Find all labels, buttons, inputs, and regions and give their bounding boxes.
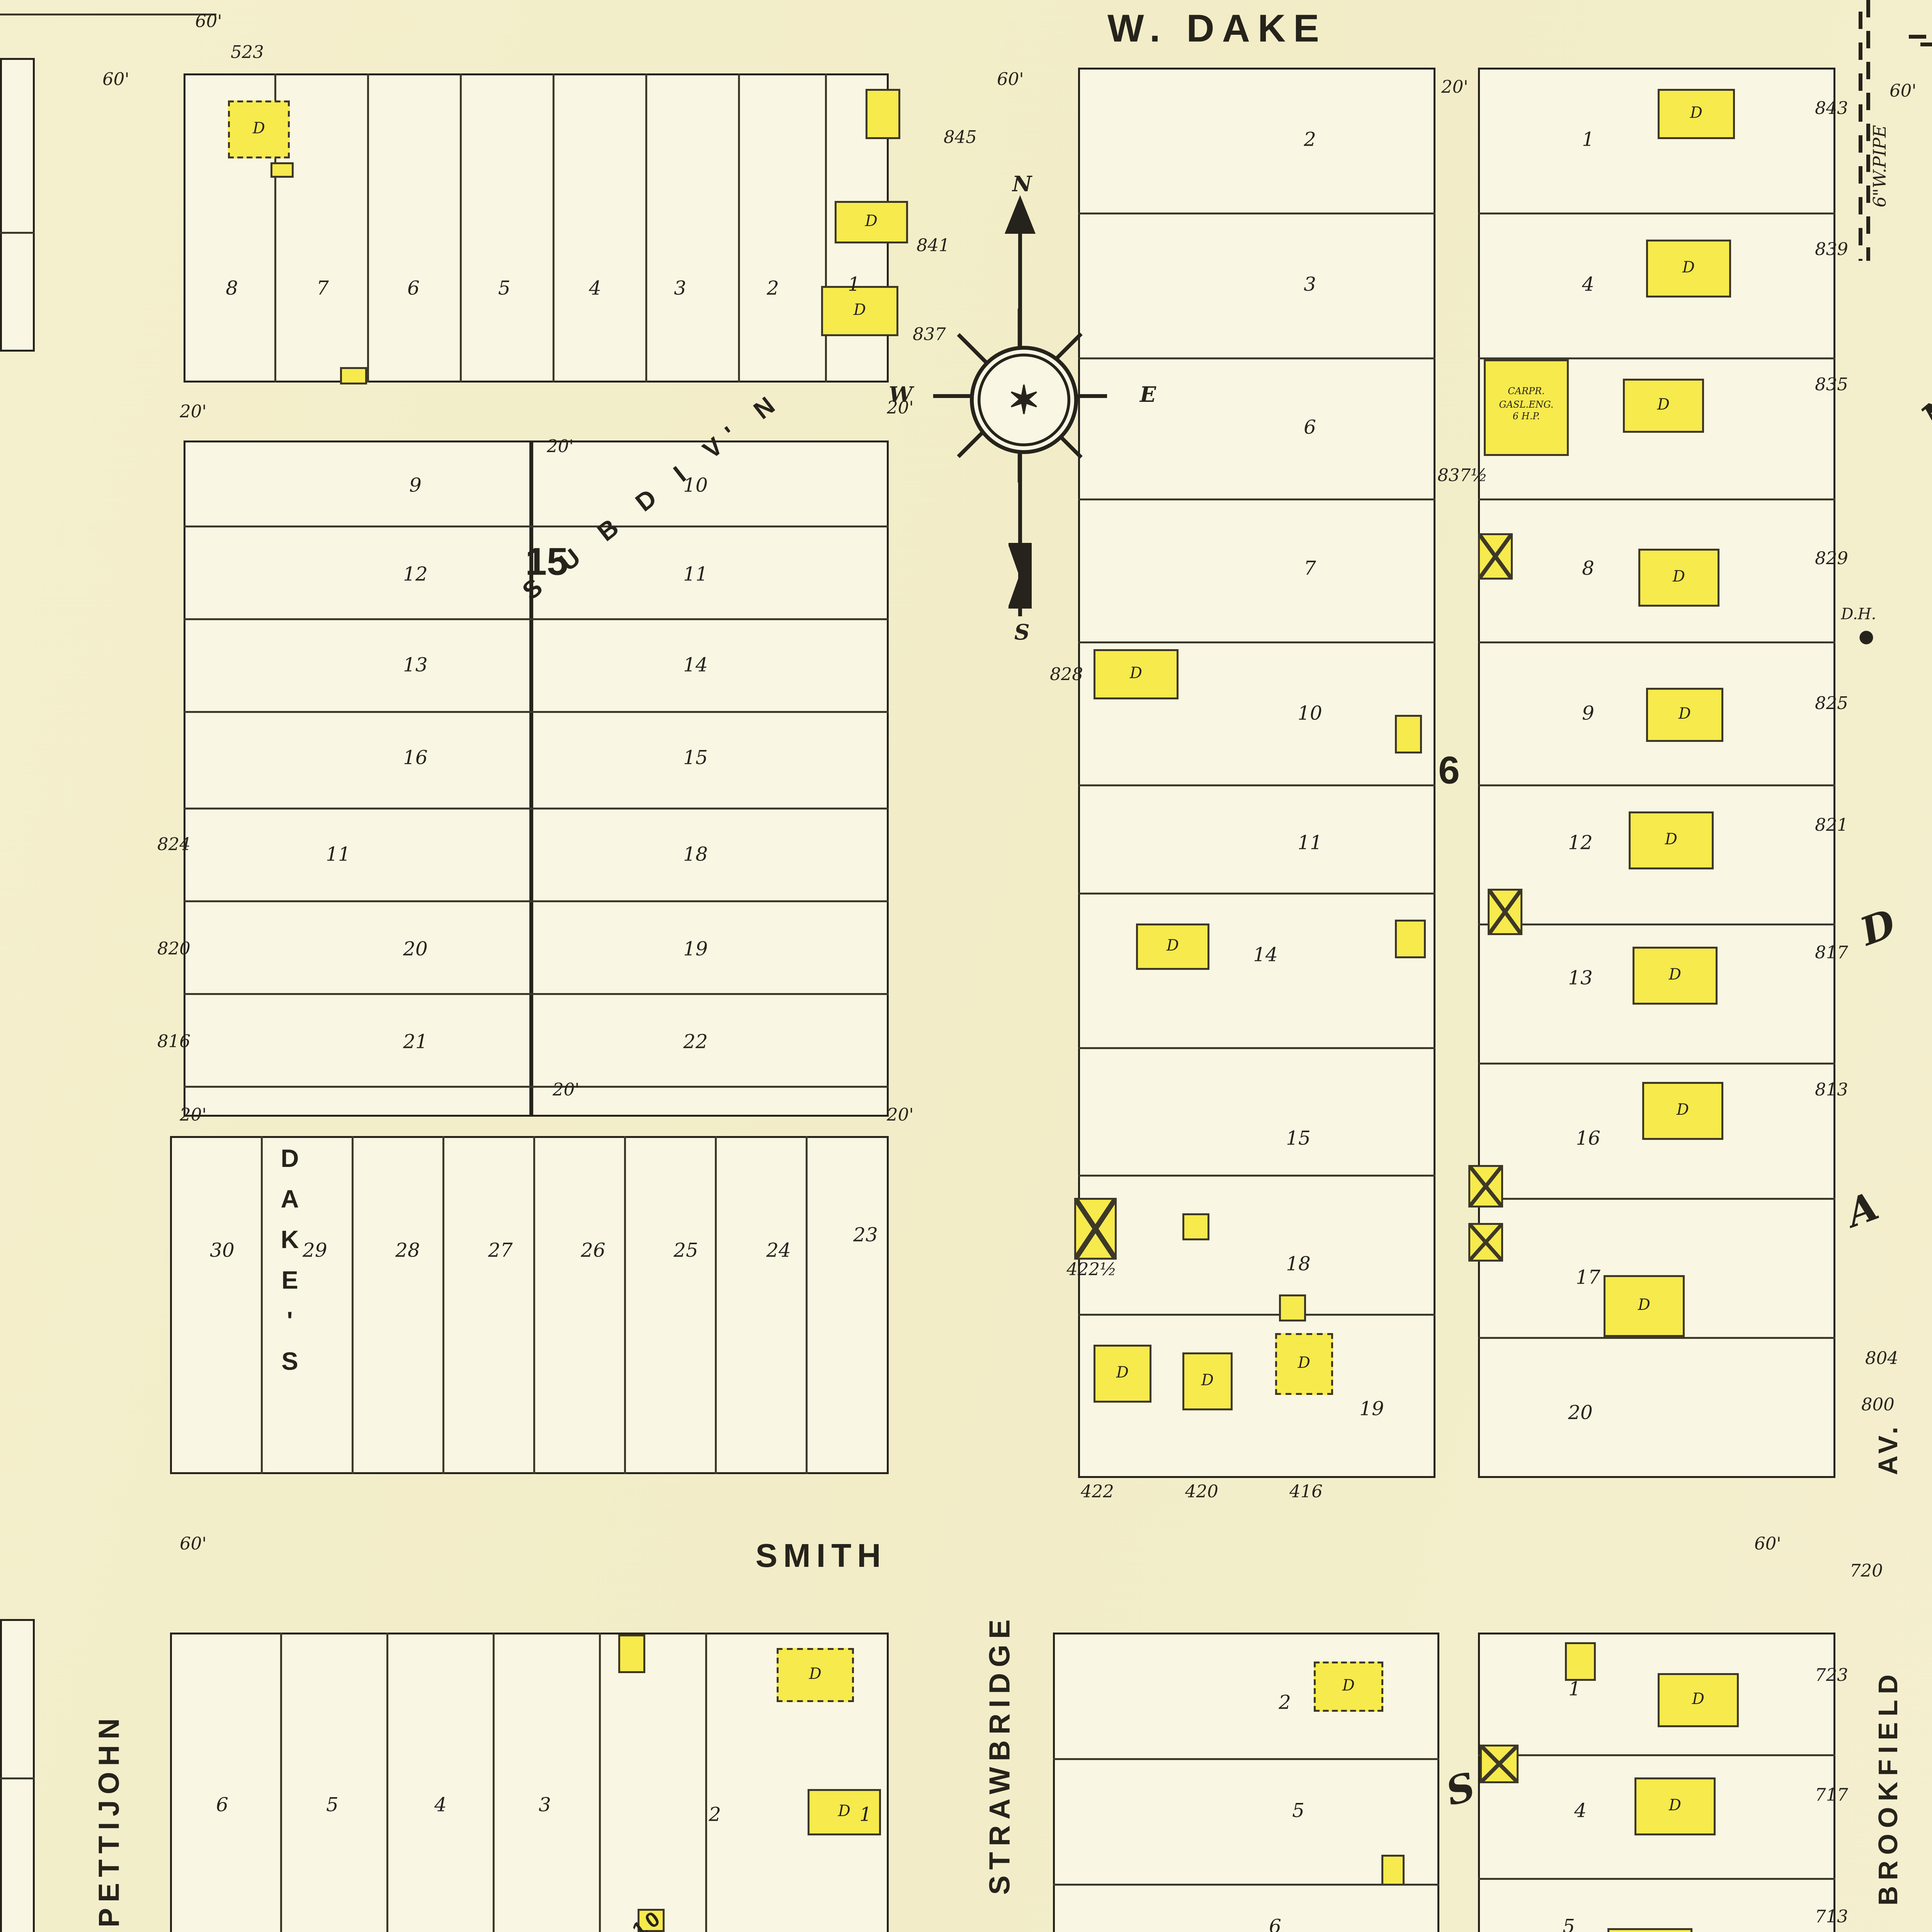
compass-north-arrow-icon — [1005, 195, 1036, 234]
house-number: 420 — [1185, 1484, 1218, 1503]
lot-line — [1478, 498, 1835, 500]
dwelling-label: D — [1673, 570, 1685, 585]
lot-number: 28 — [395, 1242, 420, 1263]
lot-number: 23 — [853, 1226, 878, 1247]
lot-line — [442, 1136, 444, 1474]
lot-line — [531, 526, 889, 527]
dimension-label: 60' — [1754, 1536, 1781, 1555]
building-footprint — [1279, 1294, 1306, 1321]
building-footprint — [1074, 1198, 1117, 1260]
building-footprint: D — [777, 1648, 854, 1702]
building-footprint: D — [1604, 1275, 1685, 1337]
house-number: 723 — [1815, 1667, 1848, 1687]
dwelling-label: D — [838, 1804, 850, 1820]
building-footprint: D — [1094, 1345, 1151, 1403]
lot-line — [645, 73, 647, 383]
subdivision-label: DAKE'S — [276, 1144, 304, 1387]
dwelling-label: D — [865, 214, 878, 230]
lot-line — [184, 711, 531, 713]
lot-line — [386, 1633, 388, 1932]
house-number: 821 — [1815, 817, 1848, 837]
building-footprint — [618, 1634, 645, 1673]
lot-number: 3 — [674, 279, 686, 301]
lot-number: 27 — [488, 1242, 513, 1263]
building-footprint: D — [1623, 379, 1704, 433]
lot-line — [531, 808, 889, 810]
lot-line — [1078, 1314, 1435, 1316]
street-spelled-letter: D — [1854, 900, 1902, 955]
lot-line — [1478, 1754, 1835, 1756]
house-number: 820 — [157, 941, 190, 960]
lot-line — [624, 1136, 626, 1474]
block-6: 6 — [1438, 751, 1460, 795]
house-number: 843 — [1815, 100, 1848, 120]
building-footprint — [270, 162, 294, 178]
dwelling-label: D — [1682, 261, 1695, 276]
lot-number: 10 — [683, 476, 708, 498]
lot-line — [1478, 1337, 1835, 1339]
city-block — [0, 1619, 35, 1932]
lot-number: 30 — [210, 1242, 235, 1263]
dwelling-label: D — [1130, 667, 1142, 682]
dimension-label: 20' — [1441, 79, 1468, 99]
lot-number: 6 — [1269, 1918, 1281, 1932]
compass-north-label: N — [1012, 172, 1032, 197]
lot-number: 6 — [407, 279, 420, 301]
house-number: 800 — [1861, 1397, 1895, 1416]
dwelling-label: D — [854, 303, 866, 319]
lot-number: 20 — [1568, 1404, 1593, 1425]
dwelling-label: D — [1342, 1679, 1355, 1694]
map-viewport: SEPT 1911 BROOKFIELD MO. ✶ N E S W Scale… — [0, 0, 1932, 1932]
lot-number: 20 — [403, 940, 428, 961]
lot-line — [1078, 1175, 1435, 1177]
water-pipe-line — [1859, 0, 1870, 261]
building-footprint: D — [1633, 947, 1718, 1005]
lot-number: 1 — [848, 276, 860, 297]
dwelling-label: D — [1657, 398, 1670, 413]
building-footprint: D — [1646, 688, 1723, 742]
house-number: 828 — [1050, 667, 1083, 686]
building-footprint — [1381, 1855, 1405, 1886]
building-footprint — [1488, 889, 1522, 935]
house-number: 713 — [1815, 1909, 1848, 1928]
lot-line — [1478, 213, 1835, 214]
lot-line — [184, 618, 531, 620]
house-number: 845 — [944, 129, 977, 149]
lot-line — [493, 1633, 495, 1932]
lot-number: 11 — [1298, 834, 1322, 855]
building-footprint — [1565, 1642, 1596, 1681]
lot-number: 15 — [683, 749, 708, 770]
lot-line — [0, 1777, 35, 1779]
lot-line — [705, 1633, 707, 1932]
lot-line — [1478, 1198, 1835, 1200]
lot-number: 25 — [673, 1242, 698, 1263]
lot-number: 16 — [1576, 1129, 1600, 1151]
house-number: 816 — [157, 1034, 190, 1053]
lot-line — [533, 1136, 535, 1474]
lot-number: 6 — [1304, 418, 1316, 440]
lot-line — [460, 73, 462, 383]
lot-number: 13 — [1568, 969, 1593, 990]
building-footprint — [1182, 1213, 1209, 1240]
house-number: 824 — [157, 837, 190, 856]
lot-line — [553, 73, 554, 383]
dwelling-label: D — [1638, 1298, 1650, 1314]
compass-fletching-icon — [1009, 543, 1032, 609]
lot-number: 8 — [1582, 560, 1594, 581]
building-footprint: D — [1658, 1673, 1739, 1727]
lot-line — [1478, 1878, 1835, 1880]
lot-number: 1 — [859, 1806, 872, 1827]
lot-line — [531, 1086, 889, 1088]
dimension-label: 20' — [553, 1082, 580, 1101]
lot-number: 4 — [434, 1796, 447, 1817]
carpenter-line1: CARPR. — [1508, 389, 1545, 401]
lot-line — [367, 73, 369, 383]
lot-line — [184, 808, 531, 810]
lot-line — [715, 1136, 717, 1474]
house-number: 825 — [1815, 696, 1848, 715]
street-label-pettijohn: PETTIJOHN — [94, 1713, 127, 1927]
lot-number: 5 — [326, 1796, 338, 1817]
lot-number: 7 — [1304, 560, 1316, 581]
double-hydrant-label: D.H. — [1841, 606, 1876, 623]
carpenter-line2: GASL.ENG. — [1499, 401, 1554, 414]
lot-line — [531, 618, 889, 620]
lot-line — [280, 1633, 282, 1932]
street-label-av-: AV. — [1872, 1423, 1903, 1475]
building-footprint — [866, 89, 900, 139]
lot-number: 18 — [1286, 1255, 1311, 1276]
lot-number: 16 — [403, 749, 428, 770]
lot-number: 10 — [1298, 704, 1322, 726]
lot-number: 19 — [683, 940, 708, 961]
lot-line — [806, 1136, 808, 1474]
lot-line — [531, 993, 889, 995]
lot-line — [261, 1136, 263, 1474]
house-number: 717 — [1815, 1787, 1848, 1806]
dwelling-label: D — [1677, 1103, 1689, 1119]
compass-east-label: E — [1140, 383, 1156, 408]
compass-west-label: W — [889, 383, 913, 408]
dwelling-label: D — [1692, 1692, 1704, 1708]
lot-number: 14 — [683, 656, 708, 677]
lot-line — [1053, 1758, 1439, 1760]
lot-number: 12 — [403, 565, 428, 587]
double-hydrant-marker — [1860, 631, 1873, 645]
lot-number: 22 — [683, 1033, 708, 1054]
lot-line — [1078, 893, 1435, 895]
house-number: 813 — [1815, 1082, 1848, 1101]
building-footprint — [1395, 715, 1422, 753]
lot-number: 5 — [498, 279, 510, 301]
compass-monogram: ✶ — [970, 346, 1078, 454]
dwelling-label: D — [1665, 833, 1677, 848]
dimension-label: 60' — [1889, 83, 1917, 102]
dwelling-label: D — [1679, 707, 1691, 723]
building-footprint: D — [1314, 1662, 1383, 1712]
house-number: 817 — [1815, 945, 1848, 964]
lot-line — [184, 993, 531, 995]
dimension-label: 20' — [547, 439, 574, 458]
lot-number: 17 — [1576, 1269, 1600, 1290]
dimension-label: 60' — [102, 71, 129, 91]
building-footprint — [1480, 1745, 1519, 1783]
building-footprint — [1395, 920, 1426, 958]
carpenter-shop-building: CARPR. GASL.ENG. 6 H.P. — [1484, 359, 1569, 456]
sanborn-map-canvas: SEPT 1911 BROOKFIELD MO. ✶ N E S W Scale… — [0, 0, 1932, 1932]
lot-number: 1 — [1582, 131, 1594, 152]
lot-number: 3 — [1304, 276, 1316, 297]
dimension-label: 20' — [887, 1107, 914, 1126]
compass-rose-icon: ✶ N E S W — [893, 184, 1155, 647]
house-number: 720 — [1850, 1563, 1883, 1582]
lot-number: 4 — [1582, 276, 1594, 297]
lot-line — [1478, 923, 1835, 925]
lot-number: 8 — [226, 279, 238, 301]
lot-number: 3 — [539, 1796, 551, 1817]
street-label-w-dake: W. DAKE — [1107, 9, 1327, 53]
building-footprint: D — [1136, 923, 1209, 970]
house-number: 829 — [1815, 551, 1848, 570]
building-footprint — [1478, 533, 1513, 580]
street-label-strawbridge: STRAWBRIDGE — [985, 1614, 1017, 1895]
lot-number: 6 — [216, 1796, 228, 1817]
lot-number: 11 — [326, 845, 350, 867]
dwelling-label: D — [1116, 1366, 1129, 1381]
house-number: 835 — [1815, 377, 1848, 396]
carpenter-line3: 6 H.P. — [1513, 414, 1540, 426]
lot-number: 9 — [1582, 704, 1594, 726]
building-footprint: D — [1658, 89, 1735, 139]
lot-number: 21 — [403, 1033, 428, 1054]
building-footprint — [1468, 1165, 1503, 1207]
lot-line — [184, 526, 531, 527]
dwelling-label: D — [1201, 1374, 1214, 1389]
lot-number: 4 — [589, 279, 601, 301]
house-number: 523 — [231, 44, 264, 64]
building-footprint: D — [1182, 1352, 1233, 1410]
building-footprint — [340, 367, 367, 384]
lot-line — [0, 232, 35, 234]
lot-number: 29 — [303, 1242, 327, 1263]
lot-line — [738, 73, 740, 383]
building-footprint: D — [1275, 1333, 1333, 1395]
city-block — [0, 58, 35, 352]
lot-line — [0, 14, 216, 15]
dwelling-label: D — [809, 1667, 821, 1683]
building-footprint: D — [1638, 549, 1719, 607]
lot-line — [352, 1136, 354, 1474]
dimension-label: 60' — [195, 14, 222, 33]
dimension-label: 60' — [180, 1536, 207, 1555]
pipe-note-label: 6"W.PIPE — [1872, 125, 1891, 207]
house-number: 804 — [1865, 1350, 1898, 1370]
dwelling-label: D — [1298, 1356, 1310, 1372]
house-number: 416 — [1289, 1484, 1323, 1503]
street-label-smith: SMITH — [755, 1538, 886, 1577]
house-number: 422½ — [1066, 1262, 1117, 1281]
lot-number: 1 — [1568, 1680, 1581, 1701]
lot-number: 13 — [403, 656, 428, 677]
lot-line — [1478, 784, 1835, 786]
lot-number: 14 — [1253, 946, 1278, 967]
building-footprint: D — [1646, 240, 1731, 298]
lot-number: 9 — [409, 476, 422, 498]
lot-number: 12 — [1568, 834, 1593, 855]
building-footprint: D — [1634, 1777, 1716, 1835]
lot-line — [1478, 1063, 1835, 1065]
lot-line — [184, 900, 531, 902]
lot-number: 26 — [581, 1242, 605, 1263]
street-label-brookfield: BROOKFIELD — [1872, 1669, 1903, 1906]
lot-number: 11 — [683, 565, 708, 587]
dwelling-label: D — [1669, 1799, 1681, 1814]
lot-number: 2 — [1279, 1694, 1291, 1715]
street-spelled-letter: S — [1441, 1763, 1480, 1815]
lot-line — [1078, 784, 1435, 786]
lot-number: 15 — [1286, 1129, 1311, 1151]
lot-number: 7 — [316, 279, 329, 301]
dwelling-label: D — [1669, 968, 1681, 983]
lot-number: 5 — [1563, 1918, 1575, 1932]
lot-line — [599, 1633, 601, 1932]
dwelling-label: D — [1690, 106, 1702, 122]
dimension-label: 20' — [180, 1107, 207, 1126]
lot-number: 2 — [709, 1806, 721, 1827]
house-number: 422 — [1081, 1484, 1114, 1503]
lot-line — [825, 73, 827, 383]
lot-number: 18 — [683, 845, 708, 867]
lot-number: 2 — [767, 279, 779, 301]
lot-line — [531, 711, 889, 713]
dwelling-label: D — [1167, 939, 1179, 954]
lot-number: 5 — [1292, 1802, 1304, 1823]
building-footprint: D — [1629, 811, 1714, 869]
building-footprint: D — [1094, 649, 1179, 699]
lot-number: 24 — [766, 1242, 791, 1263]
compass-south-label: S — [1014, 620, 1030, 645]
house-number: 837½ — [1437, 468, 1488, 487]
dimension-label: 20' — [180, 404, 207, 423]
dimension-label: 60' — [997, 71, 1024, 91]
lot-line — [1078, 1047, 1435, 1049]
house-number: 839 — [1815, 241, 1848, 261]
building-footprint: D — [1642, 1082, 1723, 1140]
lot-line — [531, 900, 889, 902]
street-spelled-letter: A — [1840, 1182, 1884, 1236]
lot-number: 19 — [1359, 1400, 1384, 1421]
building-footprint: D — [1607, 1928, 1692, 1932]
lot-number: 4 — [1574, 1802, 1587, 1823]
lot-number: 2 — [1304, 131, 1316, 152]
dwelling-label: D — [253, 122, 265, 137]
lot-line — [1478, 641, 1835, 643]
city-block — [184, 440, 531, 1117]
lot-line — [184, 1086, 531, 1088]
building-footprint — [1468, 1223, 1503, 1262]
building-footprint: D — [228, 100, 290, 158]
street-spelled-letter: N — [1913, 382, 1932, 445]
water-pipe-line — [1909, 35, 1932, 46]
